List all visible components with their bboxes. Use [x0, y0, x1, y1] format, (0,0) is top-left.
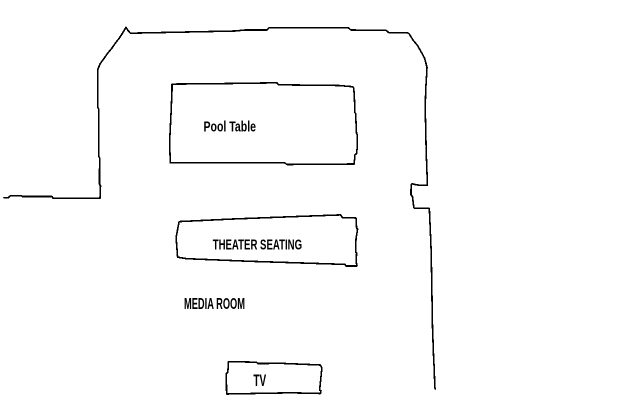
svg-text:TV: TV [253, 372, 266, 390]
svg-text:THEATER SEATING: THEATER SEATING [213, 237, 302, 253]
svg-text:Pool Table: Pool Table [204, 119, 257, 136]
svg-text:MEDIA ROOM: MEDIA ROOM [184, 296, 245, 313]
